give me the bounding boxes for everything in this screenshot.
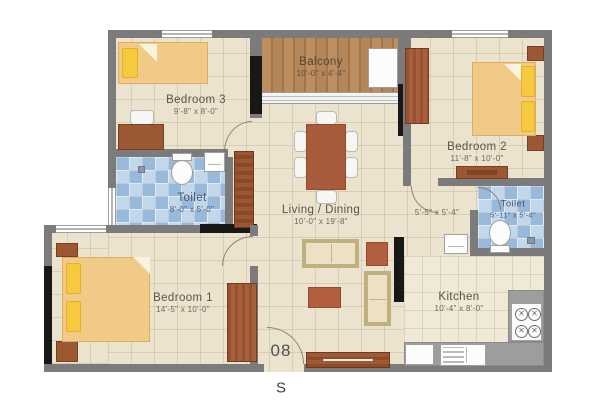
dining-chair-top <box>316 111 337 125</box>
dining-table <box>306 124 346 190</box>
bedroom1-pillow-2 <box>66 301 81 332</box>
label-passage-dims: 5'-5" x 5'-4" <box>415 207 459 217</box>
window-bedroom1-top <box>56 225 106 233</box>
floor-plan-canvas: Bedroom 3 9'-8" x 8'-0" Balcony 10'-0" x… <box>0 0 600 400</box>
wall-right <box>544 30 552 372</box>
kitchen-appliance <box>405 344 434 365</box>
bedroom2-pillow-2 <box>521 101 535 132</box>
bedroom1-nightstand-top <box>56 243 78 257</box>
bedroom2-dresser <box>456 166 508 179</box>
room-name: Living / Dining <box>282 204 360 216</box>
stove-burner-icon <box>528 308 541 321</box>
room-dims: 5'-11" x 5'-4" <box>490 211 536 220</box>
bedroom2-nightstand-top <box>527 46 544 61</box>
bedroom3-desk <box>118 124 164 150</box>
wc-bowl-right <box>489 220 511 246</box>
bedroom2-nightstand-bottom <box>527 135 544 151</box>
label-toilet-left: Toilet 8'-0" x 5'-0" <box>170 192 214 214</box>
sideboard-console <box>306 352 390 368</box>
label-balcony: Balcony 10'-0" x 4'-4" <box>297 56 346 78</box>
label-bedroom3: Bedroom 3 9'-8" x 8'-0" <box>166 94 226 116</box>
wall-left-upper-a <box>108 38 116 188</box>
washbasin-line <box>208 164 221 165</box>
floor-drain-left <box>138 166 145 173</box>
room-dims: 11'-8" x 10'-0" <box>447 154 507 163</box>
balcony-planter <box>368 48 398 88</box>
room-name: Toilet <box>170 192 214 204</box>
window-bedroom3 <box>162 30 212 38</box>
window-marker-bedroom1-left <box>44 266 52 370</box>
room-name: Bedroom 1 <box>153 292 213 304</box>
coffee-table <box>308 287 341 308</box>
label-kitchen: Kitchen 10'-4" x 8'-0" <box>435 291 484 313</box>
room-name: Toilet <box>490 199 536 210</box>
wall-bottom-left <box>44 364 264 372</box>
label-bedroom1: Bedroom 1 14'-5" x 10'-0" <box>153 292 213 314</box>
washbasin-passage <box>444 234 468 254</box>
bedroom3-pillow <box>122 48 138 78</box>
room-name: Balcony <box>297 56 346 68</box>
room-dims: 10'-0" x 4'-4" <box>297 69 346 78</box>
room-name: Kitchen <box>435 291 484 303</box>
room-dims: 9'-8" x 8'-0" <box>166 107 226 116</box>
unit-number: 08 <box>271 341 292 361</box>
floor-drain-right <box>527 237 535 244</box>
label-living-dining: Living / Dining 10'-0" x 19'-8" <box>282 204 360 226</box>
sofa-divider <box>369 299 386 300</box>
sideboard-handle <box>323 359 372 361</box>
wall-step-b <box>106 225 116 233</box>
compass-south-label: S <box>276 380 286 397</box>
sink-drainboard <box>443 347 464 363</box>
wall-step-a <box>44 225 56 233</box>
stove-burner-icon <box>515 325 528 338</box>
washbasin-line <box>448 246 464 247</box>
stove-burner-icon <box>515 308 528 321</box>
wall-toilet-left-right <box>225 157 233 233</box>
wall-top-b <box>212 30 452 38</box>
wc-bowl-left <box>171 160 193 185</box>
wall-bedroom1-right-a <box>250 225 258 236</box>
balcony-sliding-door <box>262 92 398 104</box>
door-leaf-toilet-left <box>234 151 254 228</box>
label-bedroom2: Bedroom 2 11'-8" x 10'-0" <box>447 141 507 163</box>
room-dims: 8'-0" x 5'-0" <box>170 205 214 214</box>
sofa-two-seat-horizontal <box>302 239 359 268</box>
room-dims: 10'-4" x 8'-0" <box>435 304 484 313</box>
dining-chair-right-1 <box>345 131 358 152</box>
room-name: Bedroom 3 <box>166 94 226 106</box>
sink-divider <box>466 347 467 363</box>
room-dims: 5'-5" x 5'-4" <box>415 208 459 217</box>
washbasin-toilet-left <box>204 152 225 172</box>
window-marker-balcony-left <box>250 56 262 114</box>
room-name: Bedroom 2 <box>447 141 507 153</box>
bedroom2-pillow-1 <box>521 66 535 97</box>
bedroom2-wardrobe <box>405 48 429 124</box>
label-toilet-right: Toilet 5'-11" x 5'-4" <box>490 199 536 220</box>
bedroom1-pillow-1 <box>66 263 81 294</box>
wall-top-a <box>108 30 162 38</box>
sofa-divider <box>331 244 332 263</box>
stove <box>511 303 542 341</box>
dresser-inset <box>467 170 497 175</box>
dining-chair-right-2 <box>345 157 358 178</box>
door-marker-kitchen <box>394 237 404 302</box>
room-dims: 14'-5" x 10'-0" <box>153 305 213 314</box>
bedroom1-wardrobe <box>227 283 257 362</box>
sofa-two-seat-vertical <box>364 271 391 326</box>
dining-chair-bottom <box>316 190 337 204</box>
room-dims: 10'-0" x 19'-8" <box>282 217 360 226</box>
wall-bedroom2-bottom <box>438 178 545 186</box>
wc-tank-right <box>490 245 510 253</box>
bedroom1-nightstand-bottom <box>56 341 78 362</box>
stove-burner-icon <box>528 325 541 338</box>
kitchen-sink <box>440 344 486 366</box>
side-table <box>366 242 388 266</box>
window-bedroom2 <box>452 30 508 38</box>
bedroom3-chair <box>130 110 154 125</box>
window-toilet-left <box>108 188 116 226</box>
